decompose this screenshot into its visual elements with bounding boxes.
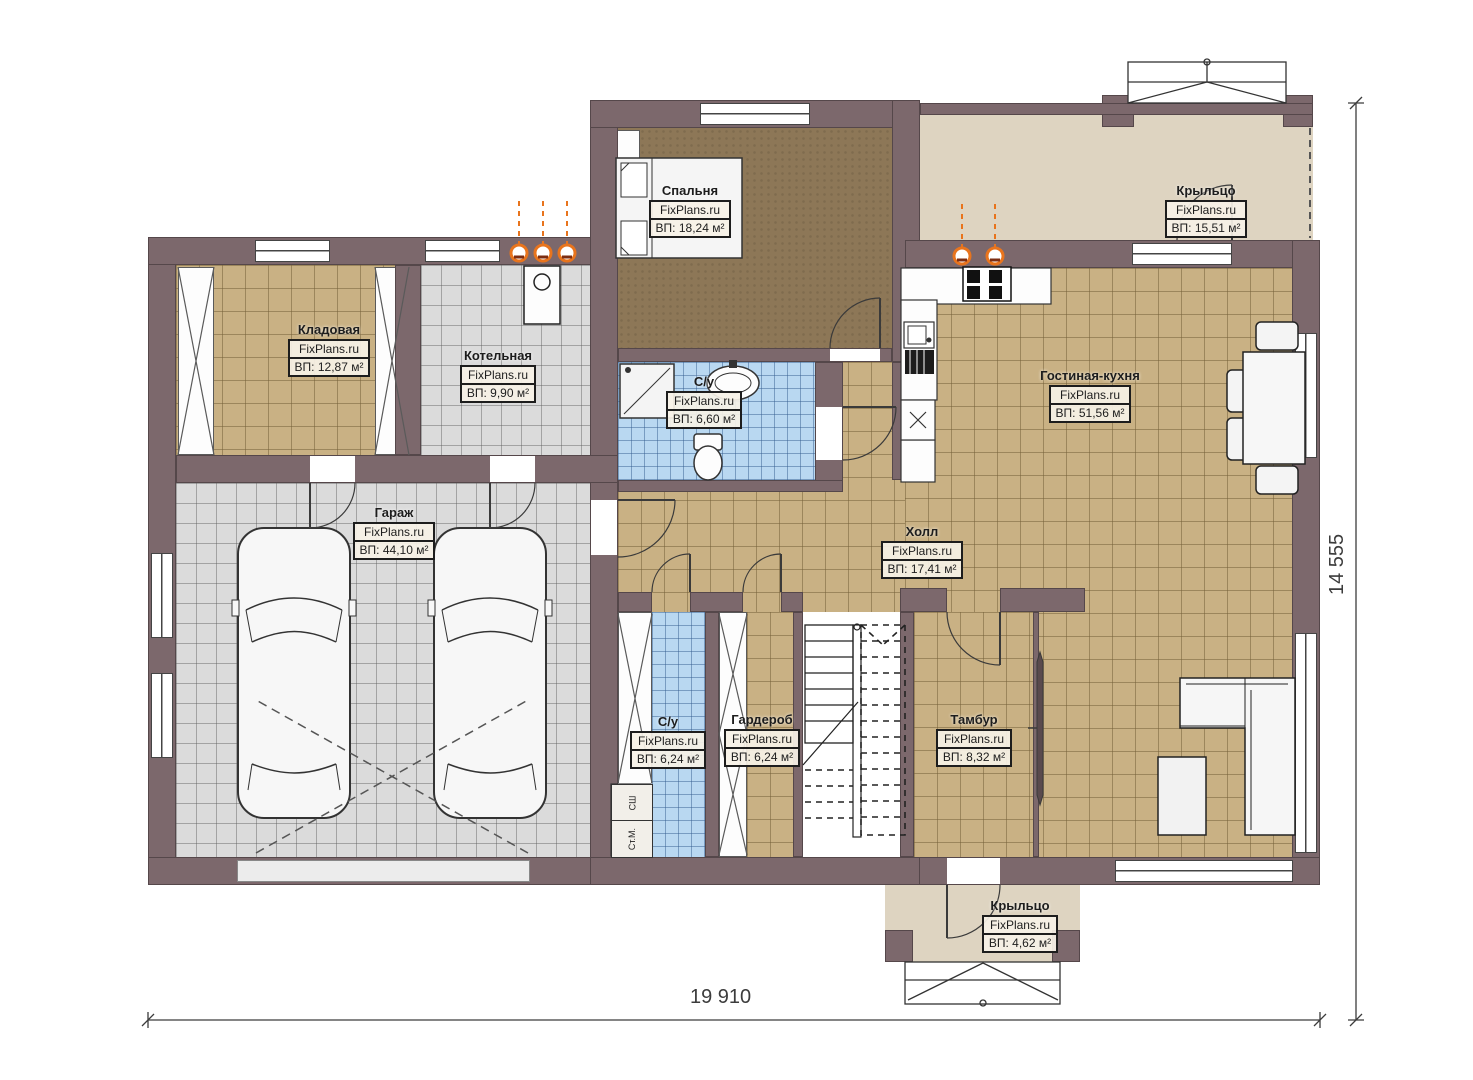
dimension-height: 14 555 bbox=[1326, 534, 1349, 595]
exterior-stair-bottom bbox=[905, 962, 1060, 1006]
wall-living-top bbox=[905, 240, 1320, 268]
wall-vestibule-partition bbox=[1033, 612, 1039, 857]
room-label-porch-bottom: Крыльцо FixPlans.ruВП: 4,62 м² bbox=[978, 898, 1062, 953]
dimension-width: 19 910 bbox=[690, 986, 751, 1009]
room-label-boiler: Котельная FixPlans.ruВП: 9,90 м² bbox=[450, 348, 546, 403]
wall-stairs-vestibule bbox=[900, 612, 914, 857]
door-gap-entrance bbox=[947, 858, 1000, 884]
wall-exterior-bottom-mid-block bbox=[590, 857, 920, 885]
room-label-bath-bottom: С/у FixPlans.ruВП: 6,24 м² bbox=[626, 714, 710, 769]
room-label-wardrobe: Гардероб FixPlans.ruВП: 6,24 м² bbox=[722, 712, 802, 767]
floor-plan: Спальня FixPlans.ruВП: 18,24 м² Крыльцо … bbox=[0, 0, 1473, 1080]
room-label-bedroom: Спальня FixPlans.ruВП: 18,24 м² bbox=[638, 183, 742, 238]
wall-vestibule-top-west bbox=[900, 588, 947, 612]
wall-hall-south-c bbox=[781, 592, 803, 612]
room-label-garage: Гараж FixPlans.ruВП: 44,10 м² bbox=[346, 505, 442, 560]
door-gap-garage-hall bbox=[591, 500, 617, 555]
garage-door bbox=[237, 860, 530, 882]
wall-mid-west bbox=[590, 100, 618, 885]
room-label-vestibule: Тамбур FixPlans.ruВП: 8,32 м² bbox=[932, 712, 1016, 767]
window-dining bbox=[1295, 333, 1317, 458]
dryer-cabinet-label: СШ bbox=[611, 784, 653, 822]
room-label-bath-top: С/у FixPlans.ruВП: 6,60 м² bbox=[662, 374, 746, 429]
door-gap-bath-top bbox=[816, 407, 842, 460]
wall-garage-north bbox=[176, 455, 618, 483]
window-garage-1 bbox=[151, 553, 173, 638]
wall-corridor-east bbox=[892, 362, 920, 480]
wall-storage-boiler bbox=[395, 265, 421, 455]
closet-storage-left bbox=[178, 267, 214, 455]
room-label-hall: Холл FixPlans.ruВП: 17,41 м² bbox=[876, 524, 968, 579]
wall-porch-top-edge bbox=[920, 103, 1313, 115]
exterior-stair-top bbox=[1128, 59, 1286, 103]
porch-bottom-pillar-left bbox=[885, 930, 913, 962]
wall-hall-south-a bbox=[618, 592, 652, 612]
wall-bath-top-south bbox=[618, 480, 843, 492]
wall-bedroom-east bbox=[892, 100, 920, 362]
washing-machine-label: Ст.М. bbox=[611, 820, 653, 858]
window-garage-2 bbox=[151, 673, 173, 758]
door-gap-bedroom bbox=[830, 349, 880, 361]
stair-well bbox=[803, 612, 900, 857]
window-storage bbox=[255, 240, 330, 262]
window-door-porch-top bbox=[1132, 243, 1232, 265]
window-bedroom bbox=[700, 103, 810, 125]
room-label-living-kitchen: Гостиная-кухня FixPlans.ruВП: 51,56 м² bbox=[1035, 368, 1145, 423]
wall-vestibule-top-east bbox=[1000, 588, 1085, 612]
door-gap-storage bbox=[310, 456, 355, 482]
wall-exterior-top-left-block bbox=[148, 237, 618, 265]
window-boiler bbox=[425, 240, 500, 262]
room-floor-bedroom bbox=[618, 128, 892, 348]
window-sofa-east bbox=[1295, 633, 1317, 853]
room-floor-porch-top bbox=[920, 115, 1313, 240]
room-label-storage: Кладовая FixPlans.ruВП: 12,87 м² bbox=[281, 322, 377, 377]
door-gap-boiler bbox=[490, 456, 535, 482]
window-sofa-south bbox=[1115, 860, 1293, 882]
wall-hall-south-b bbox=[690, 592, 743, 612]
room-label-porch-top: Крыльцо FixPlans.ruВП: 15,51 м² bbox=[1158, 183, 1254, 238]
